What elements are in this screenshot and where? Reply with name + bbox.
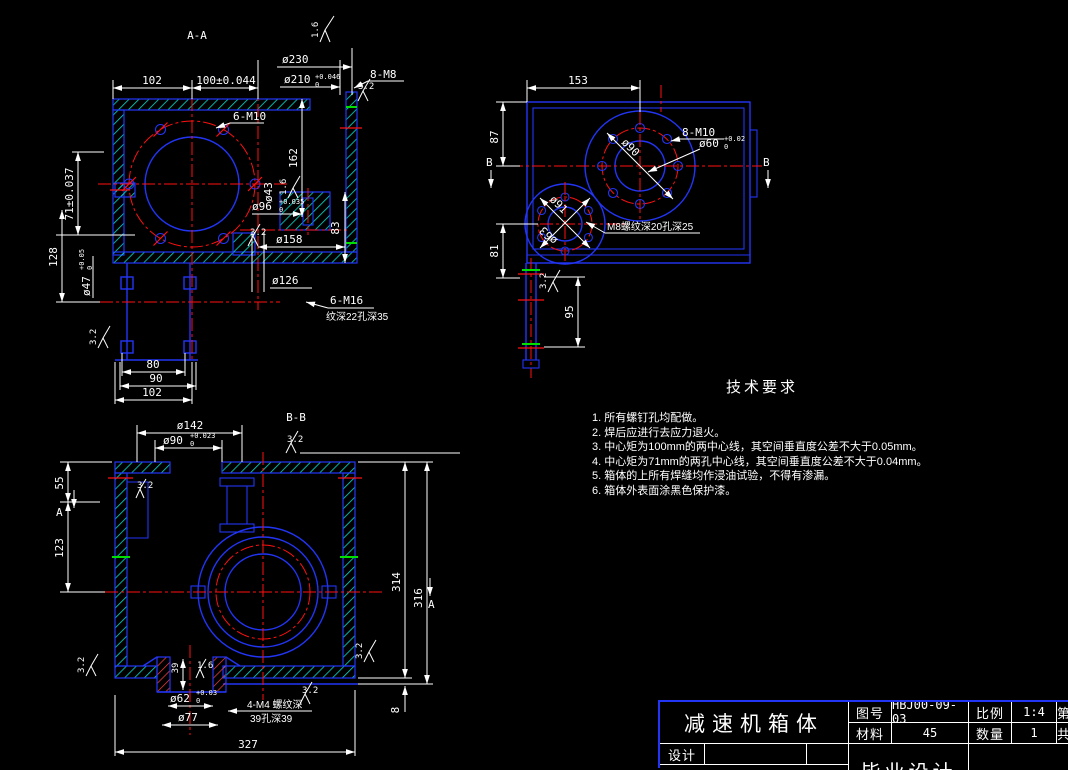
dim-8M8: 8-M8 [370,68,397,81]
dim-95: 95 [563,305,576,318]
dim-81: 81 [488,244,501,257]
project-name: 毕业设计 [861,756,957,770]
upper-bracket [220,478,254,532]
technical-requirements: 技术要求 1. 所有螺钉孔均配做。 2. 焊后应进行去应力退火。 3. 中心矩为… [592,376,932,498]
section-view-aa: A-A [47,16,404,404]
finish-ra32-step: 3.2 [137,481,153,491]
dim-d63: ø63 [537,224,560,247]
part-name: 减速机箱体 [684,708,824,738]
pedestal-leg [115,263,198,360]
dim-d90-bb: ø90 [163,434,183,447]
title-block: 减速机箱体 图号 HBJ00-09-03 比例 1:4 第 材料 45 数量 1… [658,700,1068,768]
qty-value: 1 [1012,723,1057,744]
tech-requirements-title: 技术要求 [592,376,932,397]
dim-100: 100±0.044 [196,74,256,87]
part-name-cell: 减速机箱体 [660,702,849,744]
dim-d62: ø62 [170,692,190,705]
dim-87: 87 [488,130,501,143]
side-tab [750,130,757,197]
dim-55: 55 [53,476,66,489]
view-label-bb: B-B [286,411,306,424]
sheet-label: 第 [1057,702,1068,723]
dim-d210-tol-sup: +0.046 [315,73,340,81]
finish-ra16-drain: 1.6 [197,661,213,671]
finish-ra32-floor: 3.2 [302,686,318,696]
tech-requirement-item: 5. 箱体的上所有焊缝均作浸油试验，不得有渗漏。 [592,469,932,484]
floor-right [223,666,355,678]
section-mark-B-right: B [763,156,770,169]
dim-4M4-note: 39孔深39 [250,713,293,725]
dim-d47: ø47 [80,276,93,296]
dim-327: 327 [238,738,258,751]
dim-d96-tol-sup: +0.035 [279,198,304,206]
wall-right [343,473,355,666]
dim-d60-tol-sup: +0.02 [724,135,745,143]
wall-left [115,473,127,666]
dim-d126: ø126 [272,274,299,287]
dim-d210: ø210 [284,73,311,86]
wall-right [346,92,357,252]
finish-ra32-rightwall: 3.2 [355,643,365,659]
dim-d90-top: ø90 [619,136,642,159]
finish-ra16-top: 1.6 [311,22,321,38]
dim-4M4: 4-M4 螺纹深 [247,698,303,711]
dim-8: 8 [389,707,402,714]
dim-102-top: 102 [142,74,162,87]
finish-ra16-bore: 1.6 [279,179,289,195]
material-value: 45 [892,723,969,744]
wall-top-right [222,462,355,473]
project-name-cell: 毕业设计 [849,744,969,770]
dim-153: 153 [568,74,588,87]
dim-d47-tol-sup: +0.05 [78,249,86,270]
design-name-cell [705,744,807,765]
dim-d90-tol-sup: +0.023 [190,432,215,440]
dim-123: 123 [53,538,66,558]
dim-314: 314 [390,572,403,592]
drawing-no-label: 图号 [849,702,892,723]
finish-ra32-leg: 3.2 [89,329,99,345]
drawing-no-value: HBJ00-09-03 [892,702,969,723]
finish-ra32-boss: 3.2 [250,228,266,238]
wall-top-left [115,462,170,473]
tech-requirement-item: 4. 中心矩为71mm的两孔中心线，其空间垂直度公差不大于0.04mm。 [592,455,932,470]
dim-d60: ø60 [699,137,719,150]
dim-d77: ø77 [178,711,198,724]
dim-162: 162 [287,148,300,168]
dim-6M16: 6-M16 [330,294,363,307]
dim-316: 316 [412,588,425,608]
dim-d230: ø230 [282,53,309,66]
material-label: 材料 [849,723,892,744]
section-mark-A-right: A [428,598,435,611]
dim-80: 80 [146,358,159,371]
section-mark-A-left: A [56,506,63,519]
dim-d60-tol-sub: 0 [724,143,728,151]
dim-d142: ø142 [177,419,204,432]
dimensions-top: 153 87 B B 8-M10 ø60 +0.02 0 ø90 ø91 ø63… [486,74,770,347]
dim-d62-tol-sub: 0 [196,697,200,705]
design-label: 设计 [660,744,705,765]
dim-90: 90 [149,372,162,385]
section-view-bb: B-B 3.2 3.2 [53,411,460,756]
design-date-cell [807,744,849,765]
dim-39: 39 [171,663,181,674]
dim-128: 128 [47,247,60,267]
dim-d96: ø96 [252,200,272,213]
floor-left [115,666,157,678]
centerlines-bb [105,452,382,735]
dim-6M10: 6-M10 [233,110,266,123]
finish-ra32-flange: 3.2 [358,82,374,92]
dim-71: 71±0.037 [63,168,76,221]
finish-ra32-leftwall: 3.2 [77,657,87,673]
drain-boss-left [157,657,170,692]
dim-d90-tol-sub: 0 [190,440,194,448]
dim-d96-tol-sub: 0 [279,206,283,214]
tech-requirement-item: 6. 箱体外表面涂黑色保护漆。 [592,484,932,499]
drain-boss-right [213,657,226,692]
tech-requirement-item: 1. 所有螺钉孔均配做。 [592,411,932,426]
dim-d62-tol-sup: +0.03 [196,689,217,697]
right-blank-cell [969,744,1068,770]
finish-ra32-topface: 3.2 [287,435,303,445]
dim-d158: ø158 [276,233,303,246]
dim-d43: ø43 [262,182,275,202]
qty-label: 数量 [969,723,1012,744]
scale-value: 1:4 [1012,702,1057,723]
tech-requirement-item: 2. 焊后应进行去应力退火。 [592,426,932,441]
scale-label: 比例 [969,702,1012,723]
dim-M8-thread-note: M8螺纹深20孔深25 [607,220,694,233]
view-label-aa: A-A [187,29,207,42]
finish-ra32-pipe: 3.2 [539,273,549,289]
dim-d91: ø91 [547,193,570,216]
dim-d210-tol-sub: 0 [315,81,319,89]
dim-102-bottom: 102 [142,386,162,399]
wall-top [113,99,310,110]
tech-requirement-item: 3. 中心矩为100mm的两中心线，其空间垂直度公差不大于0.05mm。 [592,440,932,455]
top-view: 153 87 B B 8-M10 ø60 +0.02 0 ø90 ø91 ø63… [486,74,770,378]
dim-83: 83 [329,221,342,234]
dim-6M16-note: 纹深22孔深35 [326,310,389,323]
section-mark-B-left: B [486,156,493,169]
total-label: 共 [1057,723,1068,744]
